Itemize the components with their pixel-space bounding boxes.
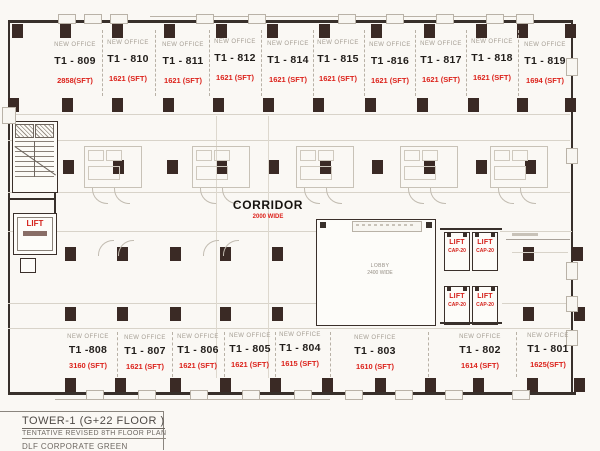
lobby-title: LOBBY <box>350 263 410 269</box>
wall-niche <box>566 262 578 280</box>
column-marker <box>313 98 324 112</box>
door-mark <box>445 390 463 400</box>
lift-label: LIFT <box>473 293 497 300</box>
column-marker <box>572 247 583 261</box>
column-marker <box>365 98 376 112</box>
lift-cell: LIFTCAP-20 <box>444 232 470 271</box>
column-marker <box>163 98 174 112</box>
right-lift-top-wall <box>440 228 502 230</box>
core-fixture <box>494 150 510 161</box>
corridor-width-label: 2000 WIDE <box>227 214 309 220</box>
door-swing <box>408 188 424 204</box>
corridor-line <box>8 303 318 304</box>
door-swing <box>223 240 239 256</box>
office-area: 1615 (SFT) <box>268 359 332 368</box>
office-area: 1625(SFT) <box>516 360 580 369</box>
core-fixture <box>196 166 228 180</box>
lift-capacity-label: CAP-20 <box>473 302 497 308</box>
lift-bank-corner-mark <box>320 222 326 228</box>
office-area: 1614 (SFT) <box>448 361 512 370</box>
door-mark <box>138 390 156 400</box>
lobby-width-label: 2400 WIDE <box>350 270 410 276</box>
core-fixture <box>88 150 104 161</box>
right-annotation-line <box>512 252 568 253</box>
door-mark <box>512 390 530 400</box>
column-marker <box>117 307 128 321</box>
lift-bank-corner-mark <box>426 222 432 228</box>
office-t1-803: NEW OFFICET1 - 8031610 (SFT) <box>343 335 407 371</box>
office-unit: T1 - 804 <box>268 342 332 354</box>
column-marker <box>565 24 576 38</box>
column-marker <box>167 160 178 174</box>
core-fixture <box>512 150 528 161</box>
column-marker <box>267 24 278 38</box>
door-mark <box>86 390 104 400</box>
column-marker <box>574 378 585 392</box>
column-marker <box>424 24 435 38</box>
left-lift: LIFT <box>13 213 57 255</box>
stair-landing-hatch <box>15 124 34 138</box>
door-mark <box>516 14 534 24</box>
column-marker <box>372 160 383 174</box>
column-marker <box>65 247 76 261</box>
column-marker <box>164 24 175 38</box>
column-marker <box>112 98 123 112</box>
office-unit: T1 -808 <box>56 344 120 356</box>
column-marker <box>216 24 227 38</box>
lift-capacity-label: CAP-20 <box>473 248 497 254</box>
office-area: 1694 (SFT) <box>513 76 577 85</box>
column-marker <box>371 24 382 38</box>
door-swing <box>520 188 536 204</box>
column-marker <box>270 378 281 392</box>
door-swing <box>92 188 108 204</box>
column-marker <box>112 24 123 38</box>
column-marker <box>60 24 71 38</box>
door-mark <box>196 14 214 24</box>
office-type-label: NEW OFFICE <box>56 334 120 340</box>
right-annotation-text <box>512 233 538 236</box>
core-fixture <box>300 150 316 161</box>
lift-cell: LIFTCAP-20 <box>472 232 498 271</box>
door-mark <box>436 14 454 24</box>
door-swing <box>118 240 134 256</box>
column-marker <box>417 98 428 112</box>
office-t1-801: NEW OFFICET1 - 8011625(SFT) <box>516 333 580 369</box>
door-mark <box>486 14 504 24</box>
corridor-line <box>8 140 570 141</box>
column-marker <box>476 24 487 38</box>
office-area: 1610 (SFT) <box>343 362 407 371</box>
door-mark <box>58 14 76 24</box>
column-marker <box>425 378 436 392</box>
corridor-title: CORRIDOR <box>227 198 309 212</box>
core-fixture <box>404 150 420 161</box>
column-marker <box>220 378 231 392</box>
column-marker <box>523 307 534 321</box>
column-marker <box>12 24 23 38</box>
door-mark <box>294 390 312 400</box>
column-marker <box>62 98 73 112</box>
column-marker <box>268 160 279 174</box>
core-fixture <box>88 166 120 180</box>
core-fixture <box>214 150 230 161</box>
office-unit: T1 - 819 <box>513 55 577 67</box>
column-marker <box>65 378 76 392</box>
office-type-label: NEW OFFICE <box>516 333 580 339</box>
column-marker <box>322 378 333 392</box>
door-swing <box>203 240 219 256</box>
right-annotation-line <box>506 239 570 240</box>
door-mark <box>84 14 102 24</box>
lift-label: LIFT <box>445 239 469 246</box>
door-mark <box>248 14 266 24</box>
core-fixture <box>196 150 212 161</box>
left-lift-label: LIFT <box>14 219 56 228</box>
column-marker <box>213 98 224 112</box>
drawing-title: TOWER-1 (G+22 FLOOR ) <box>22 415 165 429</box>
core-fixture <box>494 166 526 180</box>
left-lift-duct <box>20 258 36 273</box>
door-swing <box>114 188 130 204</box>
lift-label: LIFT <box>473 239 497 246</box>
column-marker <box>272 247 283 261</box>
door-swing <box>200 188 216 204</box>
door-mark <box>345 390 363 400</box>
column-marker <box>565 98 576 112</box>
column-marker <box>65 307 76 321</box>
drawing-subtitle: TENTATIVE REVISED 8TH FLOOR PLAN <box>22 430 166 439</box>
column-marker <box>517 98 528 112</box>
wall-niche <box>566 296 578 312</box>
corridor-label: CORRIDOR 2000 WIDE <box>227 198 309 220</box>
column-marker <box>115 378 126 392</box>
wall-stair-bottom <box>8 198 55 200</box>
office-t1-808: NEW OFFICET1 -8083160 (SFT) <box>56 334 120 370</box>
door-mark <box>190 390 208 400</box>
door-swing <box>326 188 342 204</box>
core-fixture <box>404 166 436 180</box>
lift-capacity-label: CAP-20 <box>445 248 469 254</box>
core-fixture <box>300 166 332 180</box>
office-unit: T1 - 801 <box>516 343 580 355</box>
column-marker <box>473 378 484 392</box>
lift-label: LIFT <box>445 293 469 300</box>
lift-cell: LIFTCAP-20 <box>444 286 470 325</box>
core-fixture <box>422 150 438 161</box>
corridor-line <box>8 328 570 329</box>
door-swing <box>98 240 114 256</box>
lift-bank-top-text <box>356 224 416 226</box>
column-marker <box>375 378 386 392</box>
office-t1-819: NEW OFFICET1 - 8191694 (SFT) <box>513 42 577 85</box>
stair-landing-hatch <box>35 124 54 138</box>
column-marker <box>272 307 283 321</box>
wall-left <box>8 20 10 393</box>
door-mark <box>242 390 260 400</box>
title-block: TOWER-1 (G+22 FLOOR ) TENTATIVE REVISED … <box>0 411 600 450</box>
wall-niche <box>566 148 578 164</box>
corridor-line <box>502 303 572 304</box>
column-marker <box>170 307 181 321</box>
door-mark <box>386 14 404 24</box>
lift-bank-top-box <box>352 221 422 232</box>
office-unit: T1 - 803 <box>343 345 407 357</box>
right-lift-bottom-wall <box>440 322 502 324</box>
door-swing <box>498 188 514 204</box>
title-block-line <box>0 411 163 412</box>
door-mark <box>395 390 413 400</box>
office-area: 3160 (SFT) <box>56 361 120 370</box>
column-marker <box>63 160 74 174</box>
office-unit: T1 - 802 <box>448 344 512 356</box>
core-fixture <box>106 150 122 161</box>
door-mark <box>338 14 356 24</box>
office-type-label: NEW OFFICE <box>513 42 577 48</box>
core-fixture <box>318 150 334 161</box>
corridor-line <box>8 114 570 115</box>
column-marker <box>468 98 479 112</box>
left-lift-cap-text <box>23 231 47 236</box>
lift-cell: LIFTCAP-20 <box>472 286 498 325</box>
column-marker <box>476 160 487 174</box>
unit-partition-line <box>428 332 429 377</box>
office-type-label: NEW OFFICE <box>268 332 332 338</box>
lobby-label: LOBBY 2400 WIDE <box>350 263 410 276</box>
door-mark <box>110 14 128 24</box>
column-marker <box>263 98 274 112</box>
column-marker <box>220 307 231 321</box>
office-t1-802: NEW OFFICET1 - 8021614 (SFT) <box>448 334 512 370</box>
column-marker <box>523 247 534 261</box>
office-type-label: NEW OFFICE <box>448 334 512 340</box>
stair-side-box <box>2 107 16 124</box>
column-marker <box>170 378 181 392</box>
corridor-line <box>500 231 572 232</box>
office-type-label: NEW OFFICE <box>343 335 407 341</box>
lift-capacity-label: CAP-20 <box>445 302 469 308</box>
office-t1-804: NEW OFFICET1 - 8041615 (SFT) <box>268 332 332 368</box>
column-marker <box>319 24 330 38</box>
staircase <box>12 121 58 193</box>
floor-plan: LIFTCAP-20LIFTCAP-20LIFTCAP-20LIFTCAP-20… <box>0 0 600 450</box>
door-swing <box>430 188 446 204</box>
column-marker <box>170 247 181 261</box>
